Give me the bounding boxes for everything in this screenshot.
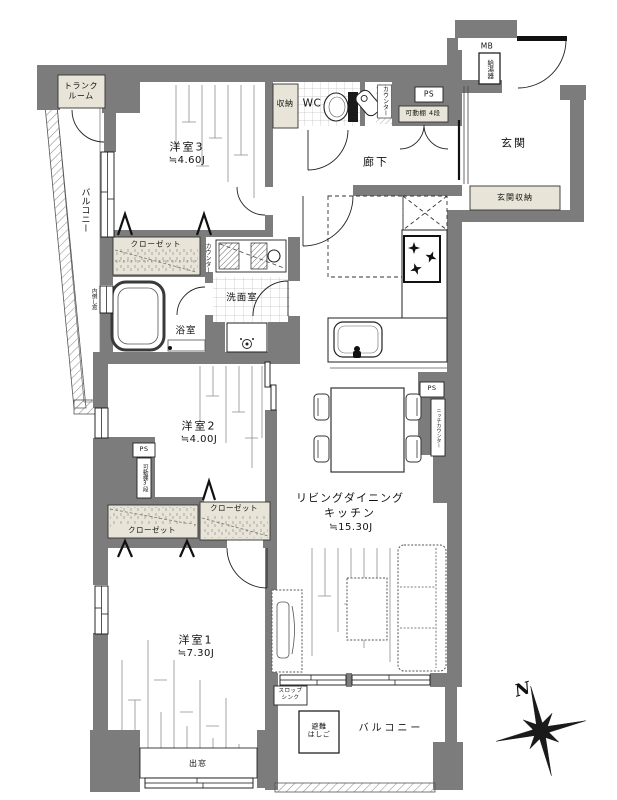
bedroom2-label: 洋室2 xyxy=(182,419,217,432)
hallway-label: 廊下 xyxy=(363,155,389,168)
bedroom1-size: ≒7.30J xyxy=(178,648,215,660)
bedroom3-window xyxy=(101,152,114,237)
mb-label: MB xyxy=(481,42,494,51)
entrance-storage-label: 玄関収納 xyxy=(497,193,533,203)
bedroom1-label: 洋室1 xyxy=(179,633,214,646)
sofa xyxy=(398,545,446,671)
bathroom-tilt-window xyxy=(100,286,113,313)
wc-counter-label: カウンター xyxy=(382,86,388,116)
closet-lower-left-label: クローゼット xyxy=(128,526,176,535)
bathtub xyxy=(112,282,205,351)
trunk-room-label: トランク ルーム xyxy=(64,81,98,100)
coffee-table xyxy=(347,578,387,640)
dining-table xyxy=(331,388,404,472)
wc-label: WC xyxy=(303,98,322,111)
kitchen-sink xyxy=(334,322,382,358)
niche-counter-label: ニッチカウンター xyxy=(436,408,441,448)
living-window-left xyxy=(280,675,346,685)
cupboard-space xyxy=(328,196,403,277)
tv-board xyxy=(272,590,302,672)
bedroom2-window xyxy=(95,408,108,438)
floor-plan: トランク ルーム バルコニー 洋室3 ≒4.60J 収納 WC カウンター PS… xyxy=(0,0,617,800)
compass-rose xyxy=(496,686,586,776)
slop-sink-label: スロップ シンク xyxy=(278,688,302,702)
balcony-west-label: バルコニー xyxy=(80,188,89,233)
stove xyxy=(404,236,440,282)
water-heater-label: 給湯器 xyxy=(486,59,493,79)
ldk-label-line1: リビングダイニング xyxy=(296,491,404,504)
bedroom2-sliding-door xyxy=(265,362,276,410)
bay-window-label: 出窓 xyxy=(189,759,207,769)
hall-storage-label: 収納 xyxy=(277,99,294,109)
closet-lower-right-label: クローゼット xyxy=(210,504,258,513)
movable-shelf-3-label: 可動棚3段 xyxy=(141,464,147,492)
ps-label-right: PS xyxy=(427,385,436,393)
balcony-south-label: バルコニー xyxy=(359,723,424,735)
ldk-size: ≒15.30J xyxy=(329,522,372,534)
washroom-label: 洗面室 xyxy=(226,292,258,303)
vanity-counter xyxy=(216,240,286,272)
dining-set xyxy=(314,388,421,472)
ldk-label-line2: キッチン xyxy=(324,506,376,519)
entrance-door xyxy=(517,36,567,41)
bathroom-label: 浴室 xyxy=(175,325,196,336)
vanity-counter-label: カウンター xyxy=(204,243,210,273)
bedroom3-label: 洋室3 xyxy=(170,140,205,153)
entrance-details xyxy=(459,36,567,184)
ps-label-top: PS xyxy=(424,90,434,99)
escape-ladder-label: 避難 はしご xyxy=(308,723,331,740)
living-window-right xyxy=(352,675,430,685)
toilet xyxy=(324,92,358,122)
bedroom1-window xyxy=(95,586,108,634)
ps-label-mid: PS xyxy=(139,446,148,454)
tilt-window-label: 内倒し窓 xyxy=(90,288,96,310)
bedroom2-size: ≒4.00J xyxy=(181,434,218,446)
closet-bedroom3-label: クローゼット xyxy=(131,240,182,249)
entrance-label: 玄関 xyxy=(501,136,527,149)
washing-machine-space xyxy=(227,323,267,352)
bedroom3-size: ≒4.60J xyxy=(169,155,206,167)
balcony-south xyxy=(275,783,435,792)
movable-shelf-4-label: 可動棚 4段 xyxy=(405,110,440,118)
